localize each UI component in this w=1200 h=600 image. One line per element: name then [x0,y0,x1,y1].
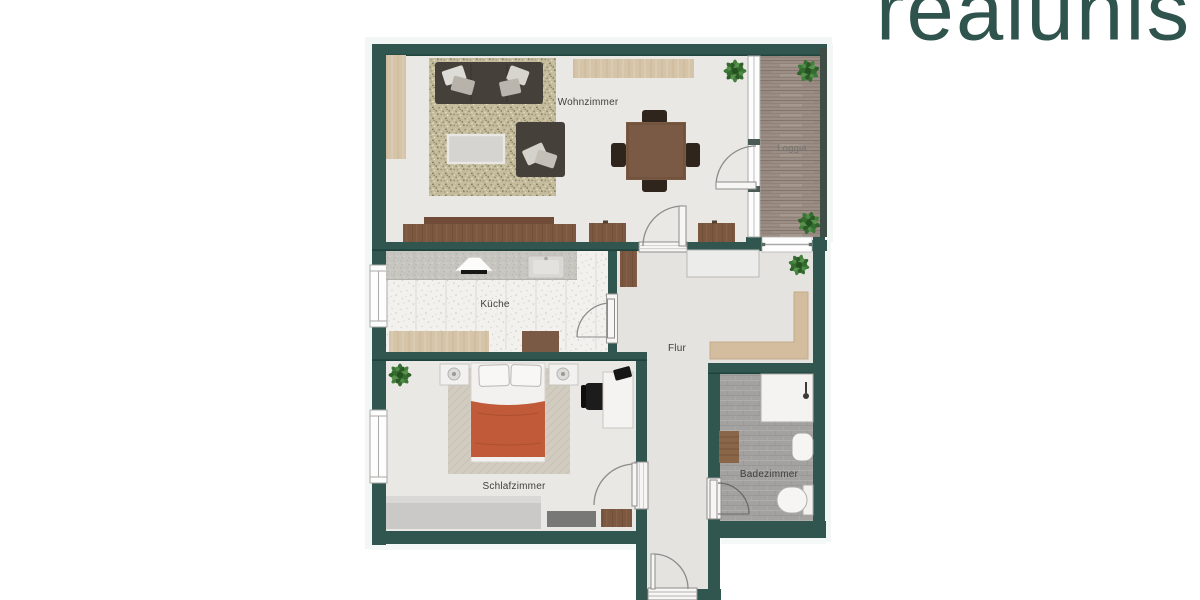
svg-text:Küche: Küche [480,299,510,310]
svg-text:Flur: Flur [668,343,686,354]
svg-text:realunis: realunis [876,0,1191,59]
svg-text:Loggia: Loggia [777,143,807,154]
svg-text:Wohnzimmer: Wohnzimmer [558,97,619,108]
svg-text:Badezimmer: Badezimmer [740,469,799,480]
svg-text:Schlafzimmer: Schlafzimmer [483,481,546,492]
